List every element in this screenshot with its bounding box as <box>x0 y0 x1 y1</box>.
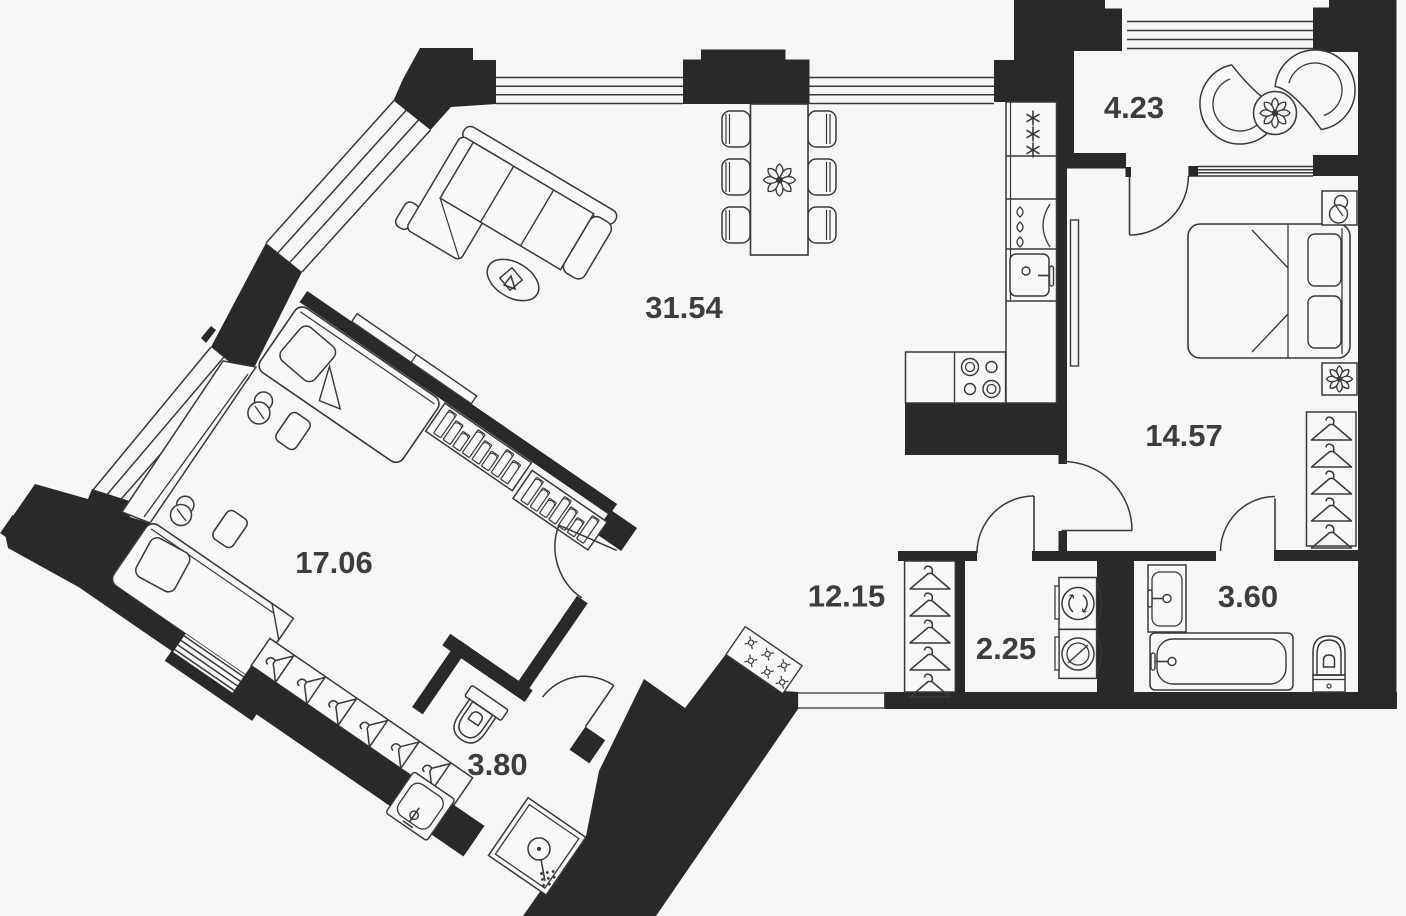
svg-text:12.15: 12.15 <box>808 579 886 614</box>
svg-text:4.23: 4.23 <box>1104 90 1164 125</box>
svg-text:2.25: 2.25 <box>976 631 1036 666</box>
svg-text:31.54: 31.54 <box>645 290 723 325</box>
svg-text:3.80: 3.80 <box>467 747 527 782</box>
svg-text:3.60: 3.60 <box>1218 579 1278 614</box>
svg-text:17.06: 17.06 <box>295 545 373 580</box>
svg-text:14.57: 14.57 <box>1145 418 1223 453</box>
